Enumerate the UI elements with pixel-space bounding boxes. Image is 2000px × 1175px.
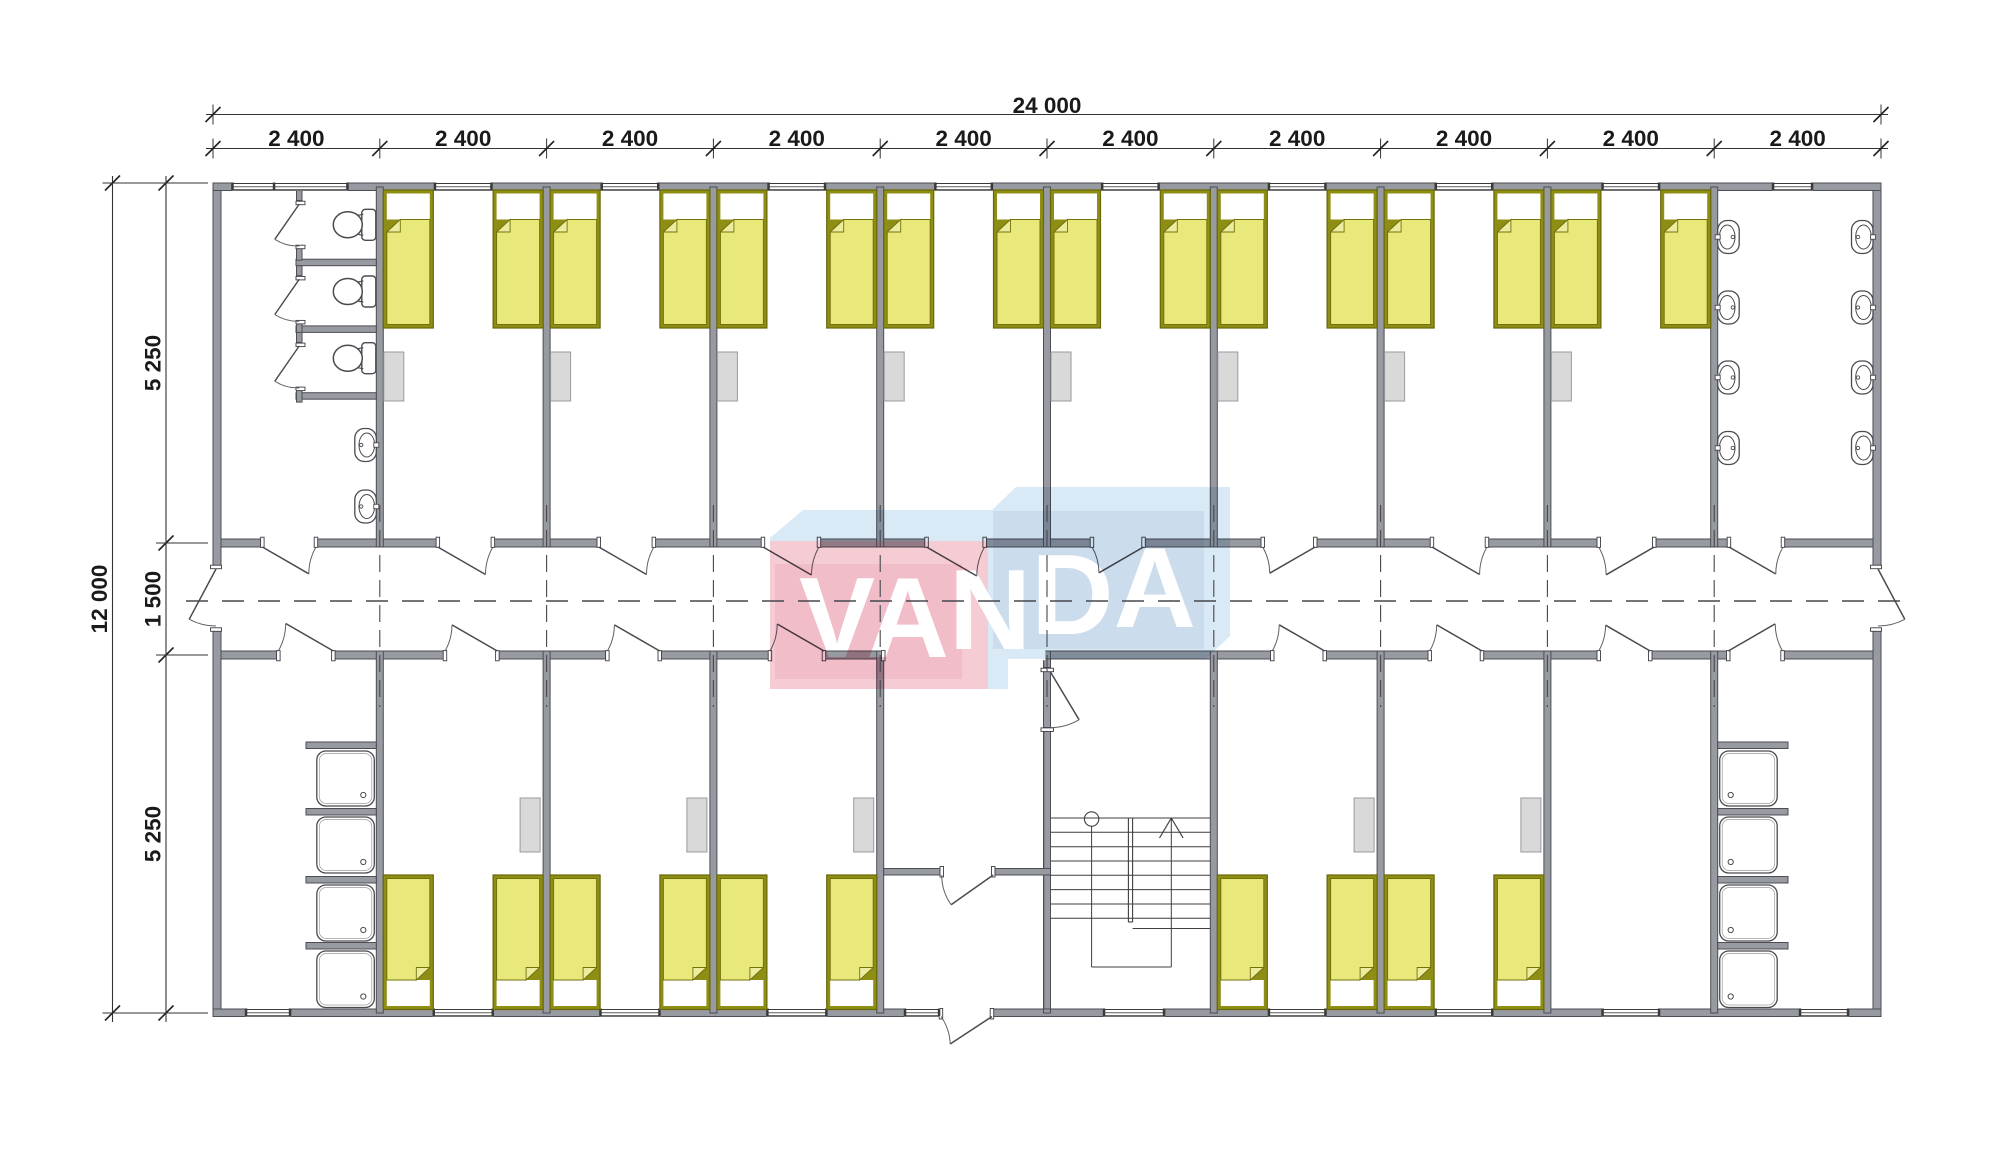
svg-text:5 250: 5 250 (141, 806, 166, 862)
svg-text:2 400: 2 400 (1769, 126, 1825, 151)
svg-text:24 000: 24 000 (1013, 93, 1082, 118)
svg-text:12 000: 12 000 (87, 565, 112, 634)
svg-text:2 400: 2 400 (602, 126, 658, 151)
svg-text:2 400: 2 400 (769, 126, 825, 151)
svg-text:2 400: 2 400 (1436, 126, 1492, 151)
svg-text:2 400: 2 400 (935, 126, 991, 151)
svg-text:2 400: 2 400 (1603, 126, 1659, 151)
svg-text:1 500: 1 500 (141, 571, 166, 627)
svg-text:2 400: 2 400 (268, 126, 324, 151)
svg-text:5 250: 5 250 (141, 335, 166, 391)
svg-text:2 400: 2 400 (435, 126, 491, 151)
svg-text:2 400: 2 400 (1102, 126, 1158, 151)
svg-text:2 400: 2 400 (1269, 126, 1325, 151)
